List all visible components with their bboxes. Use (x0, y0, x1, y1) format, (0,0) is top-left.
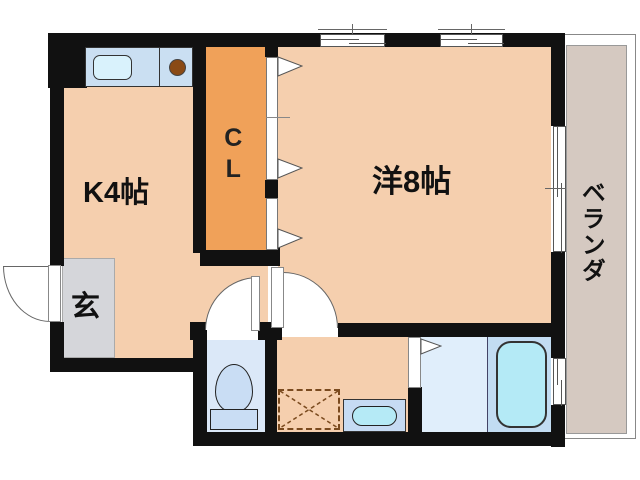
closet-label: CL (220, 124, 246, 186)
sliding-window-icon (440, 34, 503, 47)
wall-right-upper (551, 33, 565, 126)
kitchen-label: K4帖 (83, 178, 149, 208)
wall-left-upper (50, 33, 64, 266)
sliding-window-icon (320, 34, 385, 47)
counter-divider (159, 47, 160, 87)
wall-right-mid (551, 252, 565, 358)
veranda-label: ベランダ (578, 180, 603, 284)
folding-door-icon (277, 158, 303, 179)
kitchen-sink-icon (93, 55, 132, 80)
window-center-tick (352, 24, 353, 34)
stove-burner-icon (169, 59, 186, 76)
balcony-sliding-door-icon (553, 126, 566, 252)
wall-bath-left-lower (408, 387, 422, 433)
bathroom-window-icon (553, 358, 566, 405)
wash-basin-bowl (352, 406, 397, 426)
folding-door-icon (277, 228, 303, 249)
entrance-label: 玄 (71, 292, 100, 322)
entry-door-swing-icon (3, 266, 50, 322)
wall-westernroom-bottom (338, 323, 563, 337)
folding-door-icon (277, 56, 303, 77)
balcony-window-tick (545, 188, 566, 189)
washroom-door-leaf (271, 267, 284, 328)
wall-entrance-bottom (50, 358, 207, 372)
wall-mid-top (265, 38, 278, 57)
toilet-tank (210, 409, 258, 430)
wall-toilet-right (265, 340, 277, 432)
folding-door-icon (420, 338, 442, 355)
floor-plan: K4帖 洋8帖 CL 玄 ベランダ (0, 0, 640, 480)
wall-kitchen-right (193, 47, 206, 253)
closet-door-tick (266, 117, 290, 118)
western-room-label: 洋8帖 (372, 166, 451, 199)
toilet-door-leaf (251, 276, 260, 331)
entry-door-leaf (48, 265, 61, 322)
bathtub-icon (496, 341, 547, 428)
wall-right-lower (551, 405, 565, 447)
washing-machine-space-icon (278, 389, 340, 430)
wall-bottom (193, 432, 563, 446)
window-center-tick (471, 24, 472, 34)
toilet-icon (215, 364, 253, 412)
wall-toilet-left (193, 322, 207, 445)
wall-mid-chunk (265, 180, 278, 198)
